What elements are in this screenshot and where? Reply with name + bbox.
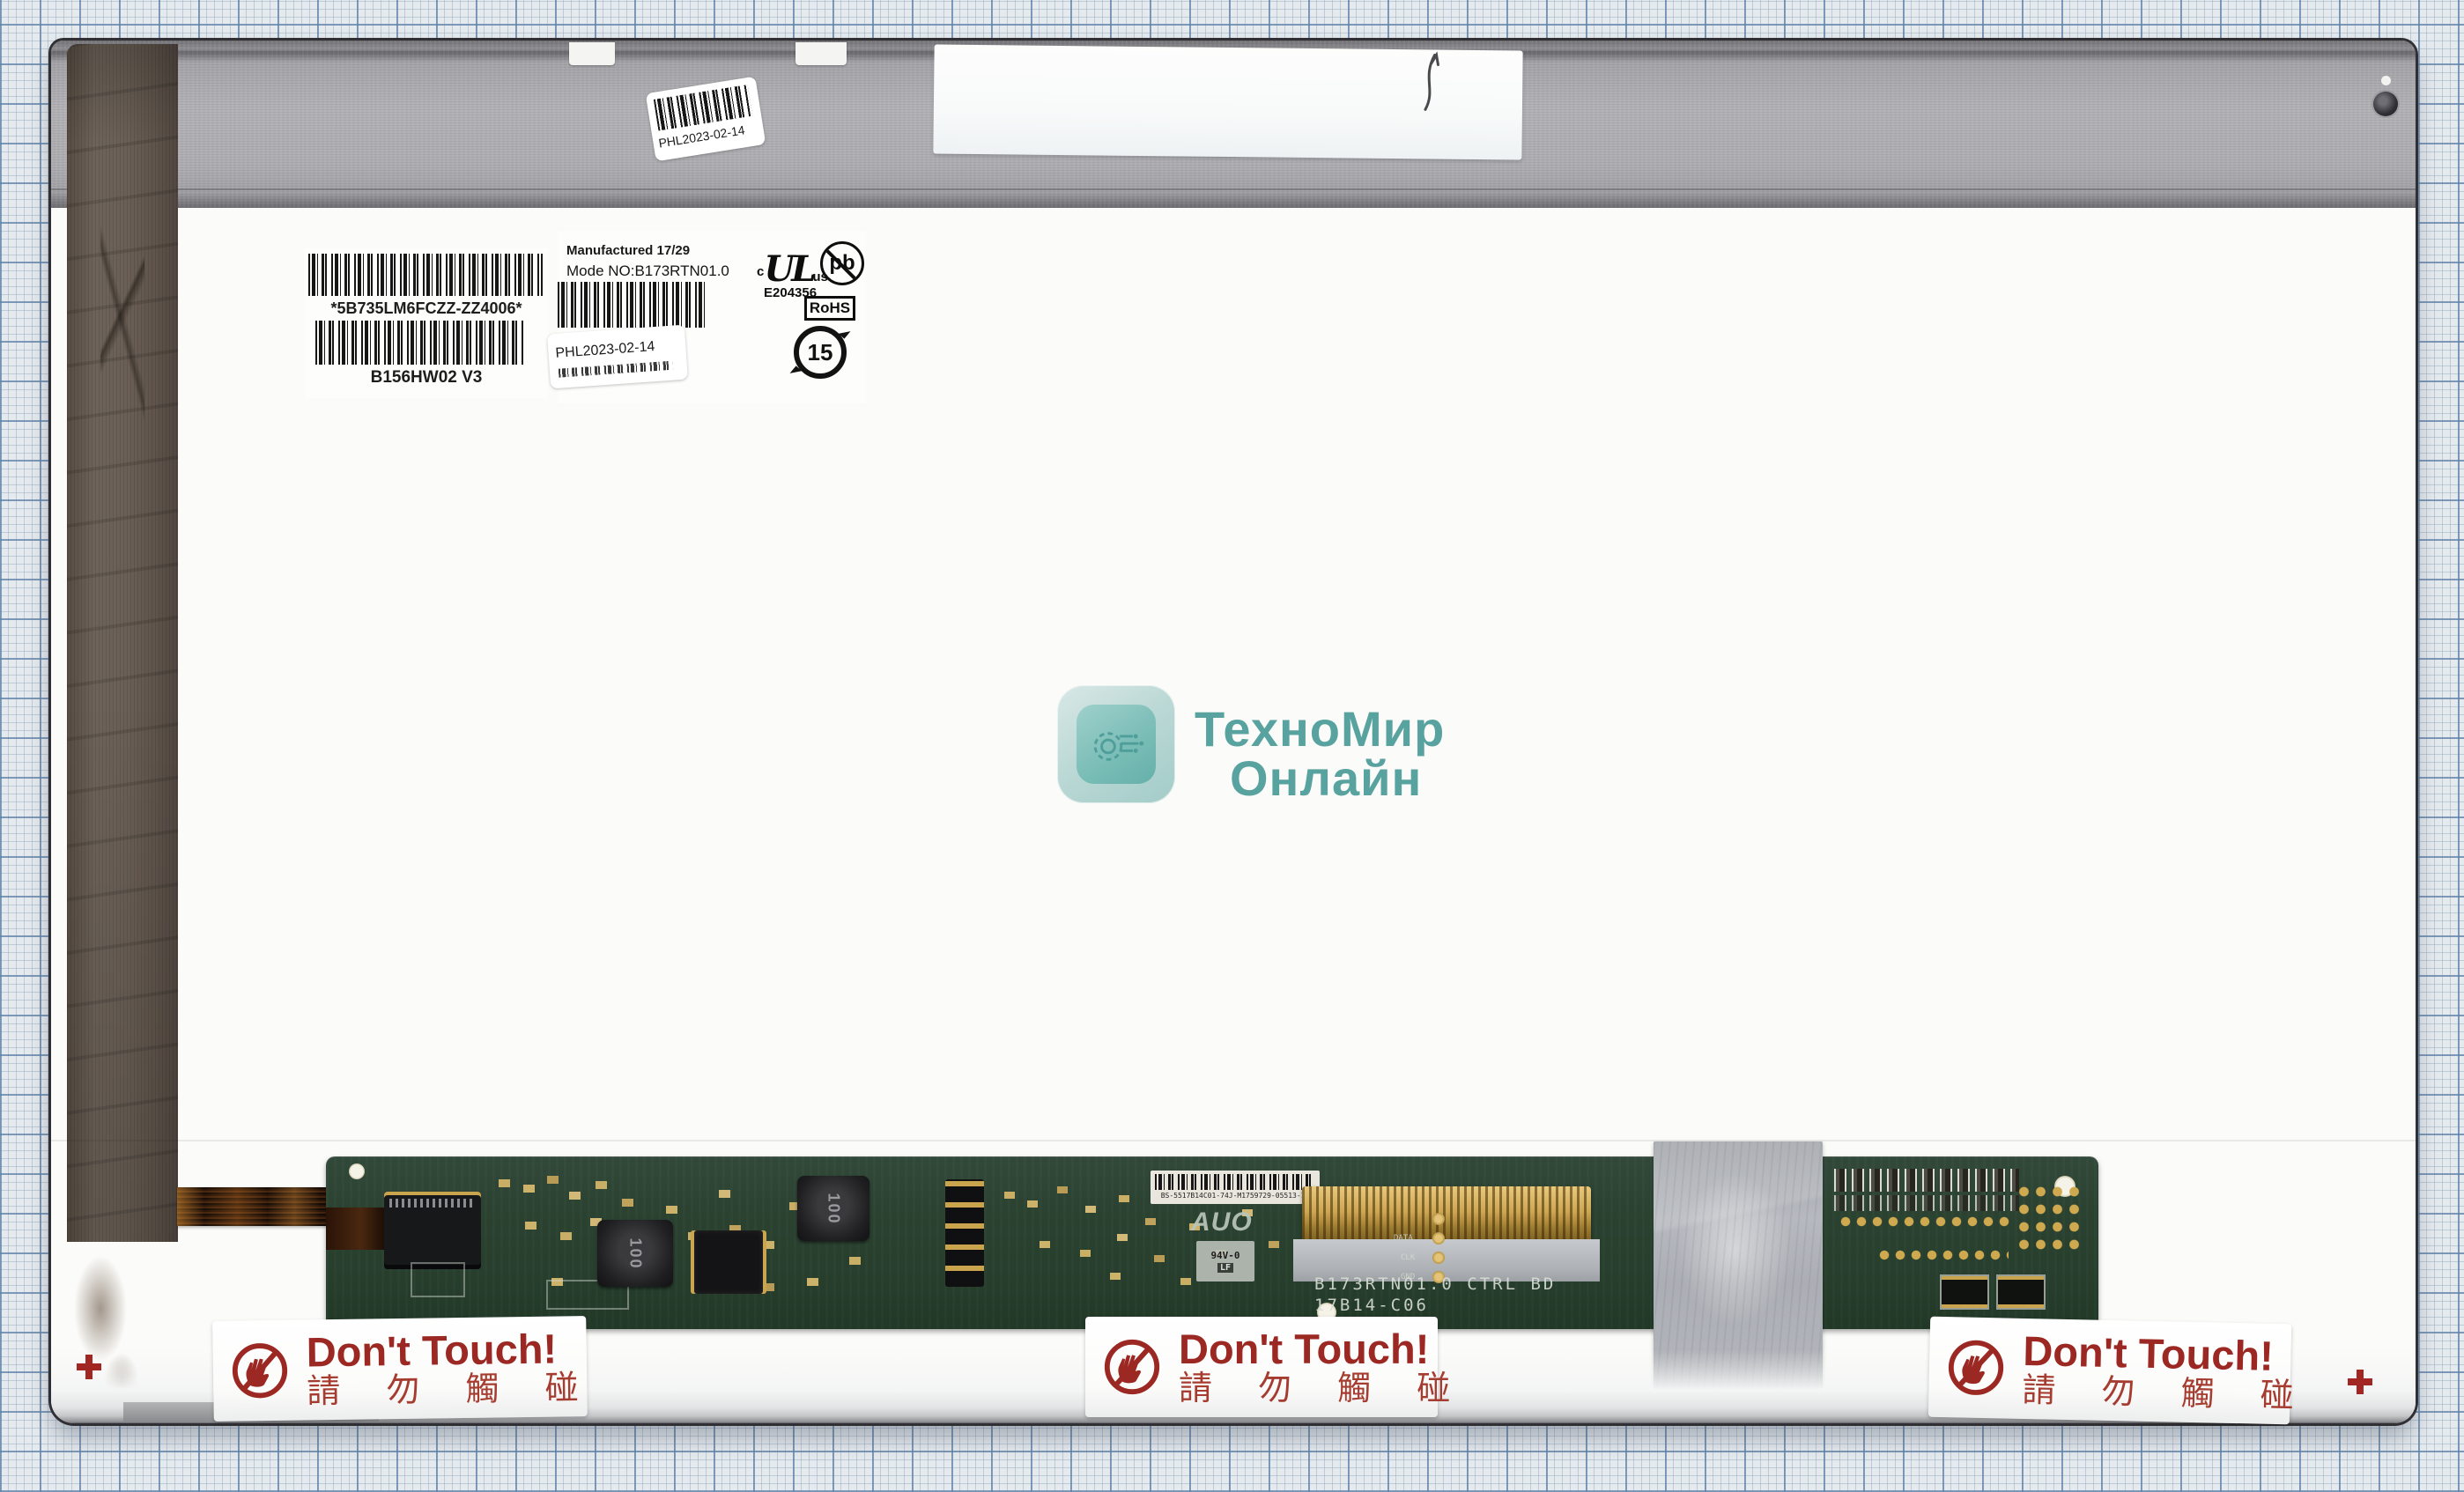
model-number: Mode NO:B173RTN01.0: [566, 262, 729, 280]
model-barcode-text: B156HW02 V3: [305, 368, 548, 388]
no-touch-icon: [229, 1340, 292, 1402]
pcb-barcode-text: BS-5517B14C01-74J-M1759729-05513-11: [1151, 1192, 1320, 1200]
warning-subtitle: 請 勿 觸 碰: [1179, 1371, 1468, 1407]
component-array: [1996, 1274, 2046, 1310]
lead-free-icon: pb: [820, 241, 864, 285]
no-touch-icon: [1101, 1336, 1163, 1398]
plus-alignment-mark: [77, 1355, 101, 1379]
pb-text: pb: [829, 251, 855, 276]
bezel-seam-line: [51, 1140, 2416, 1141]
test-pad: [1432, 1213, 1445, 1225]
mounting-hole: [349, 1163, 365, 1179]
store-name: ТехноМир Онлайн: [1195, 705, 1445, 803]
rohs-text: RoHS: [810, 299, 850, 317]
recycle-years: 15: [808, 339, 833, 366]
pen-scribble: [1410, 51, 1454, 114]
fpc-connector: [384, 1192, 481, 1269]
warning-subtitle: 請 勿 觸 碰: [307, 1370, 596, 1409]
serial-barcode-text: *5B735LM6FCZZ-ZZ4006*: [305, 299, 548, 318]
date-sticker: PHL2023-02-14: [547, 325, 688, 389]
warning-sticker: Don't Touch! 請 勿 觸 碰: [212, 1316, 588, 1422]
lcd-panel-back: *5B735LM6FCZZ-ZZ4006* B156HW02 V3 Manufa…: [51, 41, 2416, 1423]
pcb-barcode-label: BS-5517B14C01-74J-M1759729-05513-11: [1151, 1171, 1320, 1204]
mfg-barcode: [558, 282, 707, 328]
pcb-barcode: [1155, 1174, 1315, 1190]
flammability-marking: 94V-0 LF: [1196, 1241, 1254, 1281]
gear-circuit-icon: [1077, 705, 1156, 784]
test-pad: [1432, 1232, 1445, 1245]
flammability-rating: 94V-0: [1210, 1250, 1239, 1261]
model-barcode: [315, 321, 525, 365]
component-header: [945, 1179, 984, 1287]
store-name-line1: ТехноМир: [1195, 705, 1445, 754]
fpc-cable-stub: [326, 1208, 384, 1250]
serial-barcode: [308, 254, 543, 296]
testpoint-label: CLK: [1401, 1253, 1415, 1262]
lvds-connector: [1302, 1186, 1591, 1243]
top-edge-notch: [795, 42, 847, 65]
recycle-15-icon: 15: [794, 326, 847, 379]
inductor-marking: 100: [625, 1237, 644, 1269]
inductor-marking: 100: [824, 1193, 842, 1224]
warning-texts: Don't Touch! 請 勿 觸 碰: [2022, 1329, 2312, 1414]
rohs-badge: RoHS: [804, 296, 855, 321]
via-pad-row: [1838, 1215, 2014, 1229]
smd-components: [1004, 1192, 1015, 1199]
controller-pcb: 100 100 BS-5517B14C01-74J-M1759729-05513…: [326, 1156, 2098, 1329]
screw-icon: [2373, 92, 2398, 116]
driver-ic-chip: [694, 1230, 763, 1294]
power-inductor: 100: [797, 1176, 869, 1241]
warning-subtitle: 請 勿 觸 碰: [2022, 1373, 2312, 1414]
pcb-silkscreen-model: B173RTN01.0 CTRL BD: [1314, 1274, 1556, 1294]
ul-letters: UL: [764, 248, 812, 290]
date-sticker-text: PHL2023-02-14: [555, 339, 655, 362]
pcb-silkscreen-rev: 17B14-C06: [1314, 1296, 1429, 1315]
warning-texts: Don't Touch! 請 勿 觸 碰: [1179, 1327, 1468, 1406]
gear-circuit-glyph: [1084, 712, 1149, 777]
smd-components: [499, 1179, 510, 1187]
component-array: [1940, 1274, 1989, 1310]
lead-free-marking: LF: [1217, 1263, 1233, 1273]
ul-certification-mark: cULus: [757, 248, 828, 290]
power-inductor: 100: [597, 1220, 673, 1287]
warning-sticker: Don't Touch! 請 勿 觸 碰: [1085, 1317, 1438, 1417]
brown-fabric-tape: [67, 44, 178, 1242]
manufacturer-label: Manufactured 17/29 Mode NO:B173RTN01.0 c…: [558, 231, 866, 403]
alignment-dot: [2381, 76, 2391, 85]
metal-strip-seam: [51, 188, 2416, 190]
warning-title: Don't Touch!: [306, 1326, 596, 1374]
resistor-row: [1834, 1195, 2019, 1211]
via-pad-row: [1876, 1248, 2009, 1262]
manufactured-date: Manufactured 17/29: [566, 243, 690, 258]
brand-logo-frame: [1057, 685, 1175, 803]
resistor-row: [1834, 1169, 2019, 1192]
covered-print: [559, 361, 673, 378]
warning-title: Don't Touch!: [1179, 1327, 1468, 1370]
blank-shipping-sticker: [933, 45, 1522, 160]
no-touch-icon: [1944, 1336, 2007, 1399]
top-edge-notch: [569, 42, 615, 65]
flex-ribbon-cable: [177, 1187, 328, 1226]
warning-sticker: Don't Touch! 請 勿 觸 碰: [1928, 1317, 2291, 1425]
store-name-line2: Онлайн: [1195, 754, 1445, 803]
plus-alignment-mark: [2348, 1370, 2371, 1392]
auo-logo: AUO: [1191, 1208, 1253, 1237]
gold-pad-grid: [2016, 1183, 2084, 1257]
serial-label: *5B735LM6FCZZ-ZZ4006* B156HW02 V3: [305, 248, 548, 398]
testpoint-label: DATA: [1394, 1234, 1413, 1243]
photo-canvas: { "scene": { "description": "LCD laptop …: [0, 0, 2464, 1492]
tape-residue-stain: [74, 1256, 127, 1362]
silkscreen-box: [411, 1262, 465, 1297]
test-pad: [1432, 1252, 1445, 1264]
store-watermark: ТехноМир Онлайн: [1057, 685, 1515, 826]
warning-texts: Don't Touch! 請 勿 觸 碰: [306, 1326, 596, 1409]
